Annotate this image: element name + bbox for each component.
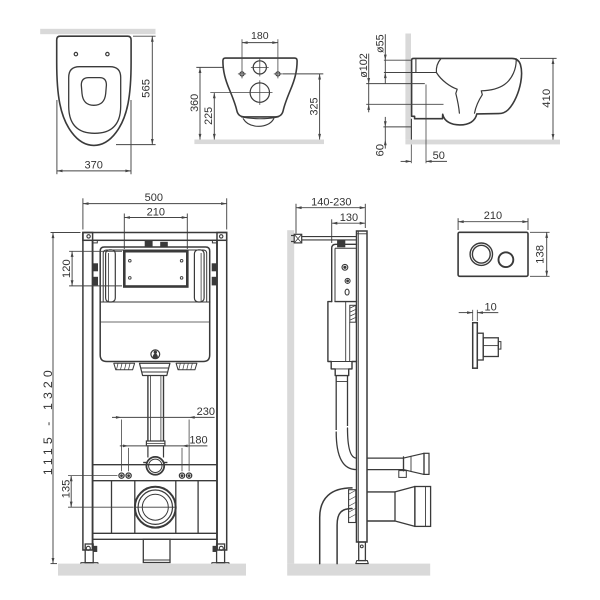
svg-text:210: 210 [147, 206, 165, 218]
svg-text:180: 180 [189, 435, 207, 447]
svg-text:1115 - 1320: 1115 - 1320 [41, 366, 55, 475]
svg-text:360: 360 [189, 94, 201, 112]
svg-text:ø55: ø55 [375, 34, 387, 53]
svg-text:50: 50 [433, 150, 445, 162]
svg-text:138: 138 [534, 245, 546, 264]
svg-text:370: 370 [85, 159, 103, 171]
svg-text:135: 135 [60, 480, 72, 499]
svg-text:325: 325 [309, 97, 321, 115]
svg-text:10: 10 [484, 301, 496, 313]
svg-text:500: 500 [145, 192, 163, 204]
svg-text:410: 410 [541, 89, 553, 108]
svg-text:225: 225 [203, 107, 215, 125]
svg-text:565: 565 [141, 79, 153, 98]
svg-text:210: 210 [484, 210, 502, 222]
svg-text:130: 130 [340, 212, 358, 224]
svg-text:ø102: ø102 [358, 53, 370, 78]
svg-text:120: 120 [61, 259, 73, 278]
svg-text:230: 230 [197, 406, 215, 418]
svg-text:60: 60 [374, 144, 386, 157]
svg-text:140-230: 140-230 [311, 196, 351, 208]
svg-text:180: 180 [251, 30, 269, 42]
